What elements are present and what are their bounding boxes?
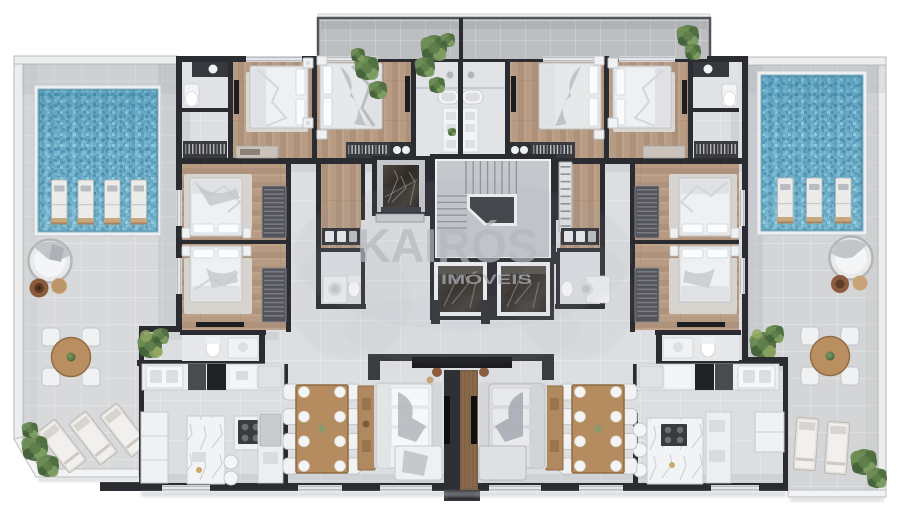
svg-text:KAIRÓS: KAIRÓS — [357, 219, 538, 272]
svg-text:IMÓVEIS: IMÓVEIS — [441, 270, 532, 287]
